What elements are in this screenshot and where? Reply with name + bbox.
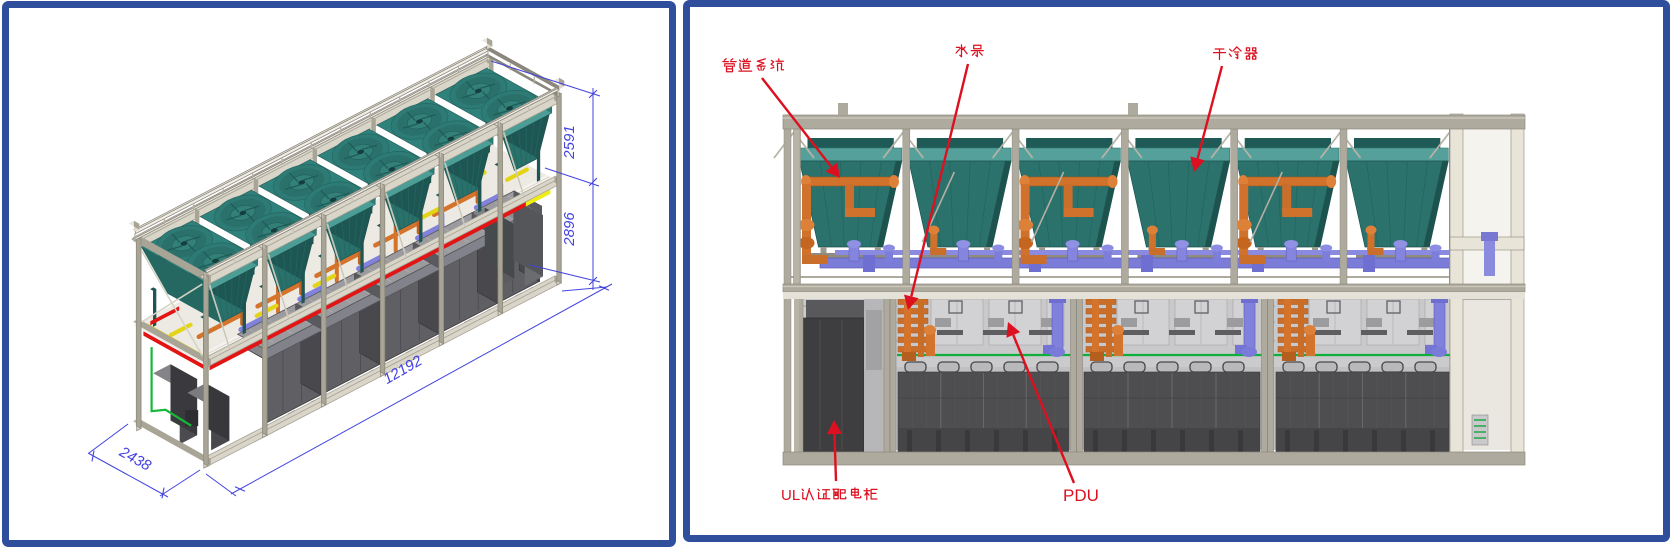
svg-text:UL: UL bbox=[781, 487, 800, 504]
svg-text:2591: 2591 bbox=[561, 125, 578, 159]
svg-text:2896: 2896 bbox=[561, 212, 578, 247]
svg-text:PDU: PDU bbox=[1063, 486, 1099, 505]
